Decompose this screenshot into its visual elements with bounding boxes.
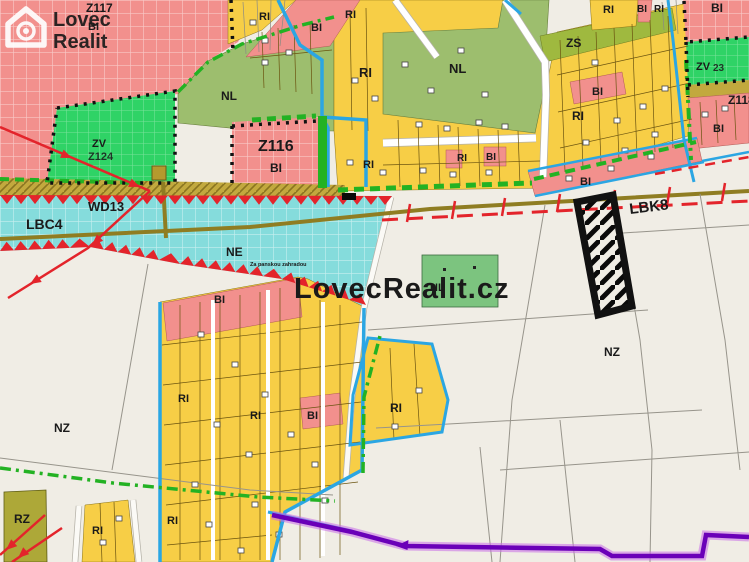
marker-khaki-icon <box>152 166 166 180</box>
marker-nl-dot <box>443 268 446 271</box>
building-footprint <box>502 124 508 129</box>
building-footprint <box>416 122 422 127</box>
zone-yellow-southwest <box>82 500 135 562</box>
zone-label-z116-bi: BI <box>270 161 282 175</box>
building-footprint <box>662 86 668 91</box>
zone-label-ri-arm: RI <box>390 401 402 415</box>
zone-label-bi-e: BI <box>713 123 724 135</box>
building-footprint <box>288 432 294 437</box>
zone-label-nz-e: NZ <box>604 345 620 359</box>
zone-label-nl-w: NL <box>221 89 237 103</box>
building-footprint <box>372 96 378 101</box>
zone-label-wd13: WD13 <box>88 199 124 214</box>
map-canvas: Z117 BI RI BI RI NL RI NL ZS RI BI RI BI… <box>0 0 749 562</box>
zone-label-rz: RZ <box>14 512 30 526</box>
building-footprint <box>458 48 464 53</box>
zone-label-bi-c: BI <box>214 294 225 306</box>
logo-text-line2: Realit <box>53 31 108 53</box>
zone-label-ri-n: RI <box>345 9 356 21</box>
zone-label-ri-ne1: RI <box>603 4 614 16</box>
building-footprint <box>352 78 358 83</box>
street-label: Za panskou zahradou <box>250 262 307 268</box>
building-footprint <box>416 388 422 393</box>
building-footprint <box>652 132 658 137</box>
zone-label-bi-ce: BI <box>307 410 318 422</box>
zone-label-bi-ms: BI <box>486 152 496 163</box>
building-footprint <box>347 160 353 165</box>
building-footprint <box>250 20 256 25</box>
building-footprint <box>262 60 268 65</box>
zone-label-nl-n: NL <box>449 61 466 76</box>
building-footprint <box>252 502 258 507</box>
building-footprint <box>380 170 386 175</box>
zone-label-ri-cw: RI <box>178 393 189 405</box>
building-footprint <box>486 170 492 175</box>
building-footprint <box>206 522 212 527</box>
zone-label-z118: Z118 <box>728 93 749 107</box>
zone-label-bi-road: BI <box>580 176 591 188</box>
building-footprint <box>450 172 456 177</box>
building-footprint <box>608 166 614 171</box>
marker-nl-dot <box>473 266 476 269</box>
building-footprint <box>402 62 408 67</box>
building-footprint <box>476 120 482 125</box>
building-footprint <box>420 168 426 173</box>
zone-label-zv-ne-code: 23 <box>713 63 725 74</box>
building-footprint <box>592 60 598 65</box>
zone-label-ri-sw2: RI <box>167 515 178 527</box>
zone-label-bi-n: BI <box>311 22 322 34</box>
zone-label-ri-cm: RI <box>250 410 261 422</box>
zone-label-bi-band-e: BI <box>592 86 603 98</box>
zone-label-ne: NE <box>226 245 243 259</box>
building-footprint <box>262 392 268 397</box>
nature-bar-solid <box>318 116 327 188</box>
building-footprint <box>246 452 252 457</box>
zone-label-zs: ZS <box>566 36 581 50</box>
building-footprint <box>312 462 318 467</box>
building-footprint <box>232 362 238 367</box>
marker-black <box>342 193 356 200</box>
building-footprint <box>192 482 198 487</box>
building-footprint <box>444 126 450 131</box>
building-footprint <box>428 88 434 93</box>
building-footprint <box>583 140 589 145</box>
logo-target-dot <box>23 28 29 34</box>
zone-label-z116: Z116 <box>258 138 294 155</box>
logo-text-line1: Lovec <box>53 9 111 31</box>
zone-label-bi-ne1: BI <box>637 4 647 15</box>
zone-label-ri-sw1: RI <box>92 525 103 537</box>
zone-label-ri-ne2: RI <box>654 4 664 15</box>
zone-label-ri-ms2: RI <box>457 153 467 164</box>
zone-yellow-ne-small <box>590 0 638 30</box>
building-footprint <box>614 118 620 123</box>
zone-label-ri-main-n: RI <box>359 65 372 80</box>
building-footprint <box>702 112 708 117</box>
zone-label-bi-ne-big: BI <box>711 1 723 15</box>
building-footprint <box>286 50 292 55</box>
zone-label-zv-ne: ZV <box>696 61 711 73</box>
zone-label-zv-w-code: Z124 <box>88 151 114 163</box>
building-footprint <box>482 92 488 97</box>
building-footprint <box>238 548 244 553</box>
zone-label-ri-nw: RI <box>259 11 270 23</box>
zone-label-nz-w: NZ <box>54 421 70 435</box>
watermark: LovecRealit.cz <box>294 273 509 305</box>
zoning-map-screenshot: Z117 BI RI BI RI NL RI NL ZS RI BI RI BI… <box>0 0 749 562</box>
road-horizontal-mid <box>383 138 536 143</box>
building-footprint <box>214 422 220 427</box>
building-footprint <box>100 540 106 545</box>
zone-label-lbc4: LBC4 <box>26 216 63 232</box>
building-footprint <box>392 424 398 429</box>
building-footprint <box>198 332 204 337</box>
building-footprint <box>640 104 646 109</box>
building-footprint <box>116 516 122 521</box>
building-footprint <box>566 176 572 181</box>
zone-label-zv-w: ZV <box>92 138 107 150</box>
zone-label-ri-ms1: RI <box>363 159 374 171</box>
zone-label-ri-e-blk: RI <box>572 109 584 123</box>
